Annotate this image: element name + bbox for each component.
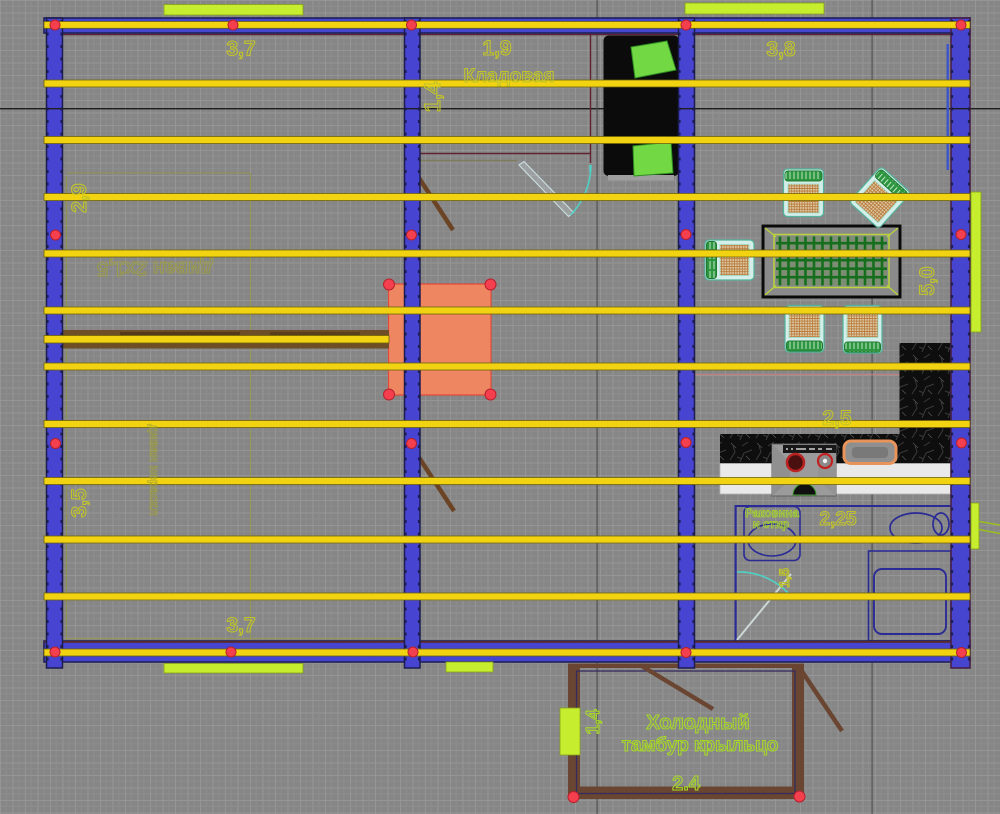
svg-text:1,4: 1,4 [420,81,445,112]
svg-text:3,7: 3,7 [226,38,255,61]
svg-text:1,9: 1,9 [482,37,511,60]
svg-text:диван 2х1,5: диван 2х1,5 [97,257,213,279]
svg-text:3,8: 3,8 [766,38,796,61]
svg-text:5,0: 5,0 [916,266,939,295]
svg-text:3,7: 3,7 [226,614,255,637]
svg-text:тамбур крыльцо: тамбур крыльцо [622,735,779,756]
svg-text:1,5: 1,5 [776,568,792,588]
svg-text:2,5: 2,5 [822,407,852,430]
svg-text:Холодный: Холодный [646,712,749,734]
svg-text:2,25: 2,25 [820,509,857,530]
svg-text:и стир: и стир [753,519,789,531]
svg-text:2,9: 2,9 [68,183,91,212]
svg-text:диван нераскл: диван нераскл [147,424,161,516]
svg-text:1,4: 1,4 [583,709,603,734]
svg-text:2.4: 2.4 [672,773,701,795]
svg-text:3,5: 3,5 [68,488,91,518]
svg-text:Кладовая: Кладовая [464,66,555,87]
